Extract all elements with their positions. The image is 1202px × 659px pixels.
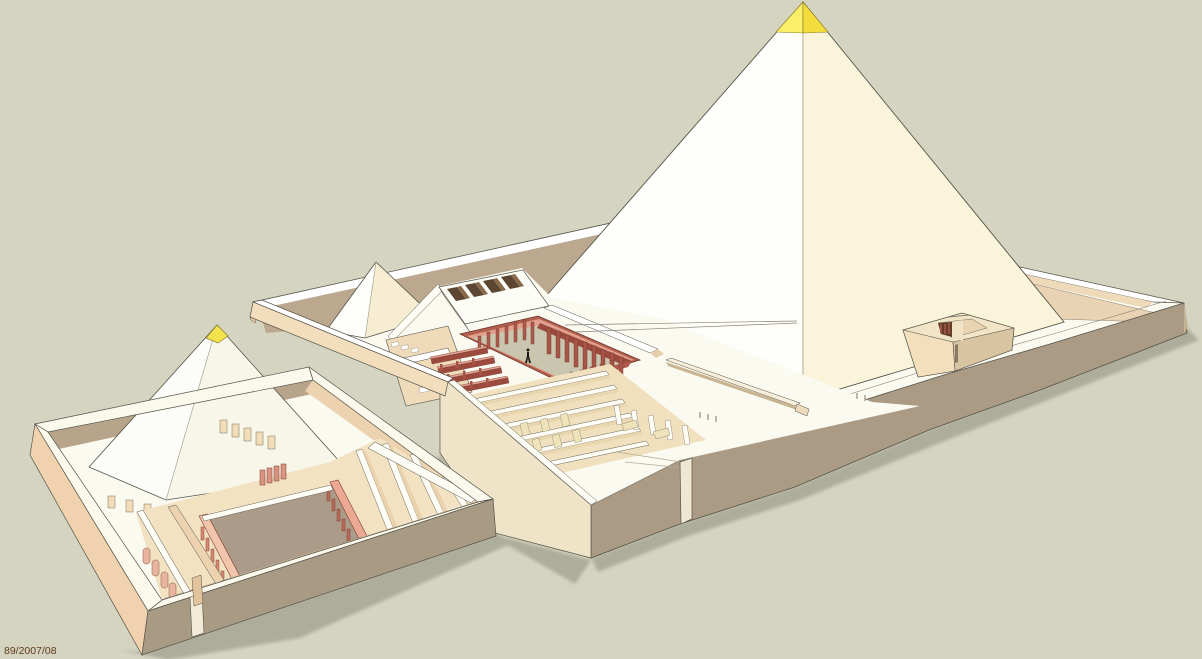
svg-text:89/2007/08: 89/2007/08	[4, 645, 57, 657]
